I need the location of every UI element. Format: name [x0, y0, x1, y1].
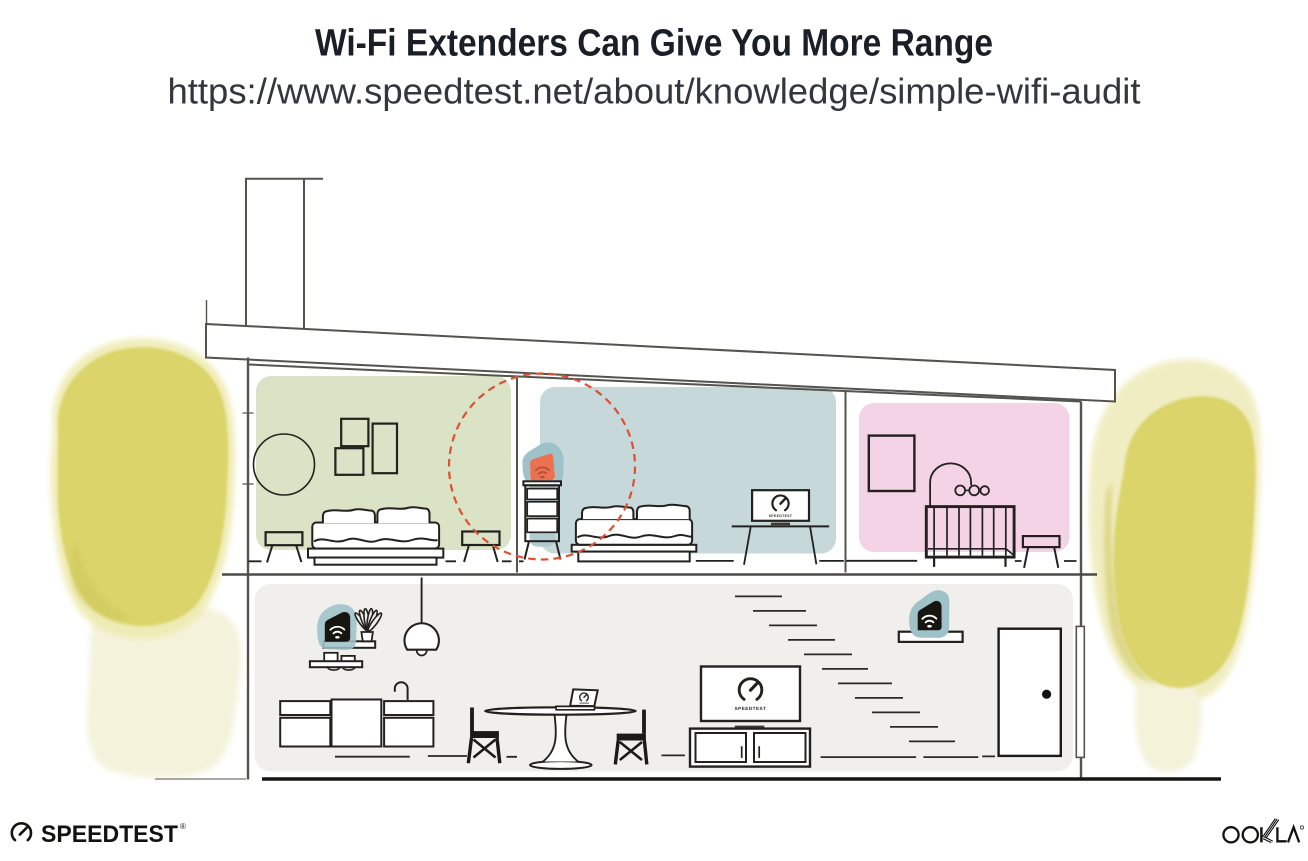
svg-text:SPEEDTEST: SPEEDTEST — [769, 514, 793, 518]
svg-text:https://www.speedtest.net/abou: https://www.speedtest.net/about/knowledg… — [168, 71, 1141, 112]
svg-text:SPEEDTEST: SPEEDTEST — [41, 821, 178, 848]
svg-text:Wi-Fi Extenders Can Give You M: Wi-Fi Extenders Can Give You More Range — [315, 23, 993, 65]
svg-text:SPEEDTEST: SPEEDTEST — [735, 706, 767, 711]
svg-text:®: ® — [180, 822, 186, 831]
